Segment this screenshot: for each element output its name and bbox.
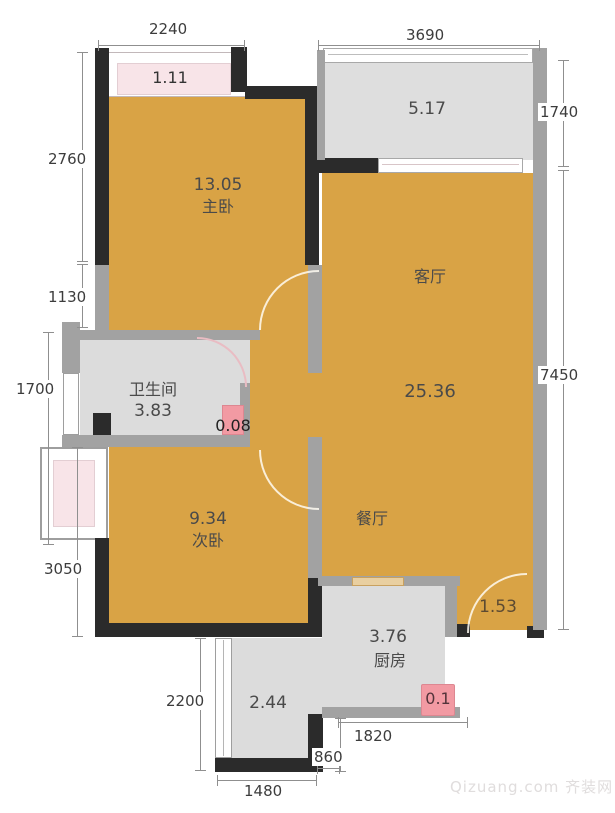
dim-line-3690 <box>318 45 540 46</box>
dim-7450: 7450 <box>538 366 580 384</box>
kitchen-area: 3.76 <box>358 628 418 647</box>
bathroom-shaft-area: 0.08 <box>210 417 256 435</box>
dim-860: 860 <box>312 748 345 766</box>
wall-left-top <box>95 48 109 265</box>
dim-3690: 3690 <box>404 26 446 44</box>
wall-bathroom-top <box>62 330 260 340</box>
living-room-balcony-window <box>378 158 523 173</box>
master-bedroom-name: 主卧 <box>188 198 248 216</box>
bathroom-name: 卫生间 <box>117 381 189 399</box>
dim-1740: 1740 <box>538 103 580 121</box>
dim-line-1480 <box>217 780 317 781</box>
dim-line-860 <box>317 768 340 769</box>
dining-room-name: 餐厅 <box>342 510 402 528</box>
master-balcony-area: 1.11 <box>140 69 200 87</box>
wall-balcony-living-left <box>317 50 325 160</box>
dim-2240: 2240 <box>147 20 189 38</box>
dim-3050: 3050 <box>42 560 84 578</box>
room-living-dining <box>322 173 533 637</box>
kitchen-pass-opening <box>352 577 404 586</box>
wall-bathroom-left-bottom <box>62 435 80 447</box>
kitchen-shaft: 0.1 <box>421 684 455 716</box>
living-balcony-top-window-line <box>328 54 528 55</box>
wall-corridor-bottom <box>215 758 322 772</box>
wall-second-bedroom-bottom <box>95 623 322 637</box>
master-bedroom-area: 13.05 <box>188 176 248 195</box>
dim-1700: 1700 <box>14 380 56 398</box>
dim-line-1700 <box>48 332 49 545</box>
dim-1820: 1820 <box>352 727 394 745</box>
second-bedroom-name: 次卧 <box>178 532 238 550</box>
kitchen-name: 厨房 <box>360 652 420 670</box>
wall-living-window-left <box>310 158 378 173</box>
kitchen-shaft-area: 0.1 <box>422 690 454 708</box>
living-balcony-top-window <box>323 48 533 63</box>
living-room-balcony-window-line <box>382 164 519 165</box>
wall-kitchen-right <box>445 576 457 637</box>
dim-2760: 2760 <box>46 150 88 168</box>
dim-line-1820 <box>338 722 468 723</box>
wall-dining-divider <box>308 578 322 637</box>
wall-left-upper-gray <box>95 265 109 330</box>
bay-window-fill <box>53 460 95 527</box>
living-room-name: 客厅 <box>400 268 460 286</box>
dim-line-7450 <box>563 170 564 630</box>
bathroom-area: 3.83 <box>123 402 183 421</box>
dim-2200: 2200 <box>164 692 206 710</box>
dim-1130: 1130 <box>46 288 88 306</box>
corridor-area: 2.44 <box>238 694 298 713</box>
floor-plan: 0.1 1.11 5.17 13.05 主卧 客厅 25.36 卫生间 3.83… <box>0 0 615 813</box>
dim-line-3050 <box>77 447 78 637</box>
corridor-window-line <box>223 640 224 756</box>
second-bedroom-area: 9.34 <box>178 510 238 529</box>
dim-line-2240 <box>98 45 245 46</box>
living-room-area: 25.36 <box>397 382 463 402</box>
bathroom-window <box>63 373 79 435</box>
wall-bathroom-bottom <box>80 435 250 447</box>
entry-area: 1.53 <box>468 598 528 617</box>
living-balcony-area: 5.17 <box>397 100 457 119</box>
dim-1480: 1480 <box>242 782 284 800</box>
wall-right-main <box>533 160 547 630</box>
watermark: Qizuang.com 齐装网 <box>450 776 613 797</box>
